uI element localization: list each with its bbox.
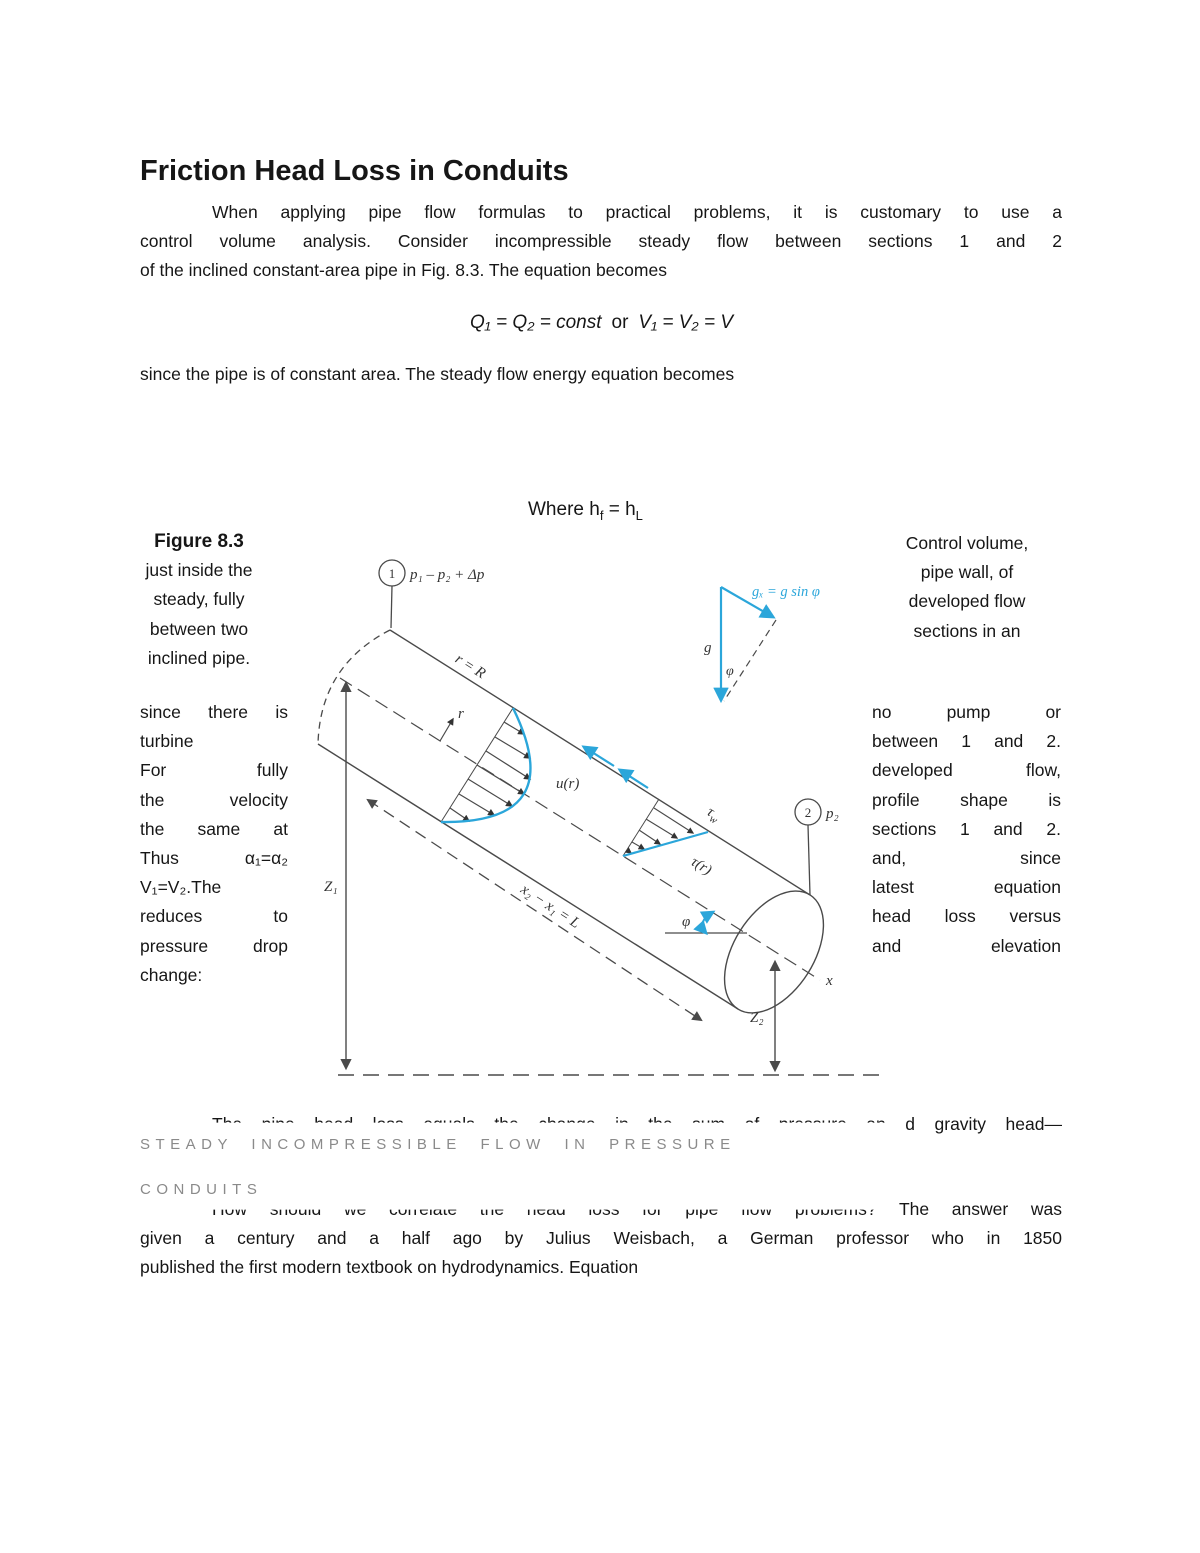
visible-tail: The answer was [899,1199,1062,1219]
r-arrow [440,719,453,741]
caption-line: inclined pipe. [124,644,274,673]
word: elevation [991,936,1061,957]
paragraph-2: since the pipe is of constant area. The … [140,360,734,389]
word: at [273,819,288,840]
text-line: sincethereis [140,702,288,731]
phi-angle: φ [665,912,747,933]
word: loss [945,906,976,927]
pipe-left-end [318,630,390,744]
text-line: Thusα₁=α₂ [140,848,288,877]
text-line: thevelocity [140,790,288,819]
word: 2. [1046,819,1061,840]
velocity-profile: u(r) [441,708,579,822]
word: and [994,731,1023,752]
wall-shear-arrow [584,747,614,766]
length-dimension: x₂ − x₁ = L [368,800,701,1020]
section-heading-line-1: STEADY INCOMPRESSIBLE FLOW IN PRESSURE [140,1136,736,1153]
word: versus [1009,906,1061,927]
phi-label-2: φ [726,664,734,679]
where-sub-l: L [636,508,643,523]
equation-lhs: Q₁ = Q₂ = const [470,312,602,333]
document-page: Friction Head Loss in Conduits When appl… [0,0,1200,1553]
section-2-marker: 2 p₂ [795,799,839,895]
svg-text:2: 2 [805,805,812,820]
figure-8-3-diagram: 1 p₁ – p₂ + Δp 2 p₂ x r r = R [300,548,910,1093]
pipe-top-wall [390,630,810,895]
word: For [140,760,166,781]
word: V₁=V₂.The [140,877,221,898]
g-label: g [704,640,712,656]
body-line: given a century and a half ago by Julius… [140,1224,1062,1253]
r-equals-R-label: r = R [452,651,488,682]
gravity-vectors: g gₓ = g sin φ φ [704,584,820,701]
wall-shear-arrow [620,770,648,788]
text-line: V₁=V₂.The [140,877,288,906]
text-line: Forfully [140,760,288,789]
tau-wall-label: τw [702,804,723,827]
body-line: published the first modern textbook on h… [140,1253,638,1282]
equation-or: or [612,312,629,333]
word: pressure [140,936,208,957]
equation-rhs: V₁ = V₂ = V [638,312,733,333]
word: since [1020,848,1061,869]
figure-caption-left: Figure 8.3 just inside the steady, fully… [124,527,274,673]
word: turbine [140,731,194,752]
word: 2. [1046,731,1061,752]
page-title: Friction Head Loss in Conduits [140,155,569,188]
word: drop [253,936,288,957]
word: and [993,819,1022,840]
gx-label: gₓ = g sin φ [752,584,820,600]
clipped-line-2: How should we correlate the head loss fo… [140,1195,1062,1224]
intro-line-1: When applying pipe flow formulas to prac… [212,198,1062,227]
word: flow, [1026,760,1061,781]
length-label: x₂ − x₁ = L [517,881,583,932]
caption-line: just inside the [124,556,274,585]
visible-tail: d gravity head— [905,1114,1062,1134]
continuity-equation: Q₁ = Q₂ = constorV₁ = V₂ = V [470,312,733,334]
z2-dimension: Z₂ [750,962,775,1070]
svg-text:1: 1 [389,566,396,581]
phi-label: φ [682,914,690,930]
shear-stress-profile: τw τ(r) [623,799,724,879]
z1-label: Z₁ [324,879,338,895]
text-line: thesameat [140,819,288,848]
word: equation [994,877,1061,898]
word: same [197,819,240,840]
where-text-2: = h [603,499,635,520]
caption-line: steady, fully [124,585,274,614]
word: fully [257,760,288,781]
word: α₁=α₂ [245,848,288,869]
clipped-text: The pipe head loss equals the change in … [212,1114,886,1134]
word: since [140,702,181,723]
text-line: turbine [140,731,288,760]
r-label: r [458,706,464,722]
word: change: [140,965,202,986]
pipe-right-end [704,874,844,1031]
pipe-centerline [340,678,820,980]
clipped-text: How should we correlate the head loss fo… [212,1199,899,1219]
wrap-text-left-column: sincethereis turbine Forfully thevelocit… [140,702,288,994]
tau-r-label: τ(r) [688,854,714,879]
word: is [1048,790,1061,811]
word: shape [960,790,1008,811]
word: the [140,819,164,840]
word: 1 [960,819,970,840]
word: 1 [961,731,971,752]
word: there [208,702,248,723]
word: or [1045,702,1061,723]
z1-dimension: Z₁ [324,683,346,1068]
word: velocity [230,790,288,811]
word: Thus [140,848,179,869]
word: pump [947,702,991,723]
word: to [273,906,288,927]
intro-line-2: control volume analysis. Consider incomp… [140,227,1062,256]
x-axis-label: x [825,973,833,989]
word: is [275,702,288,723]
figure-number: Figure 8.3 [124,527,274,556]
z2-label: Z₂ [750,1010,764,1026]
clipped-line-1: The pipe head loss equals the change in … [140,1110,1062,1139]
where-note: Where hf = hL [528,499,643,523]
section-1-marker: 1 p₁ – p₂ + Δp [379,560,485,628]
velocity-label: u(r) [556,776,579,792]
where-text: Where h [528,499,600,520]
caption-line: between two [124,615,274,644]
word: reduces [140,906,202,927]
pressure-drop-label: p₁ – p₂ + Δp [409,567,485,583]
word: the [140,790,164,811]
p2-label: p₂ [825,806,839,822]
text-line: pressuredrop [140,936,288,965]
text-line: reducesto [140,906,288,935]
text-line: change: [140,965,288,994]
intro-line-3: of the inclined constant-area pipe in Fi… [140,256,667,285]
